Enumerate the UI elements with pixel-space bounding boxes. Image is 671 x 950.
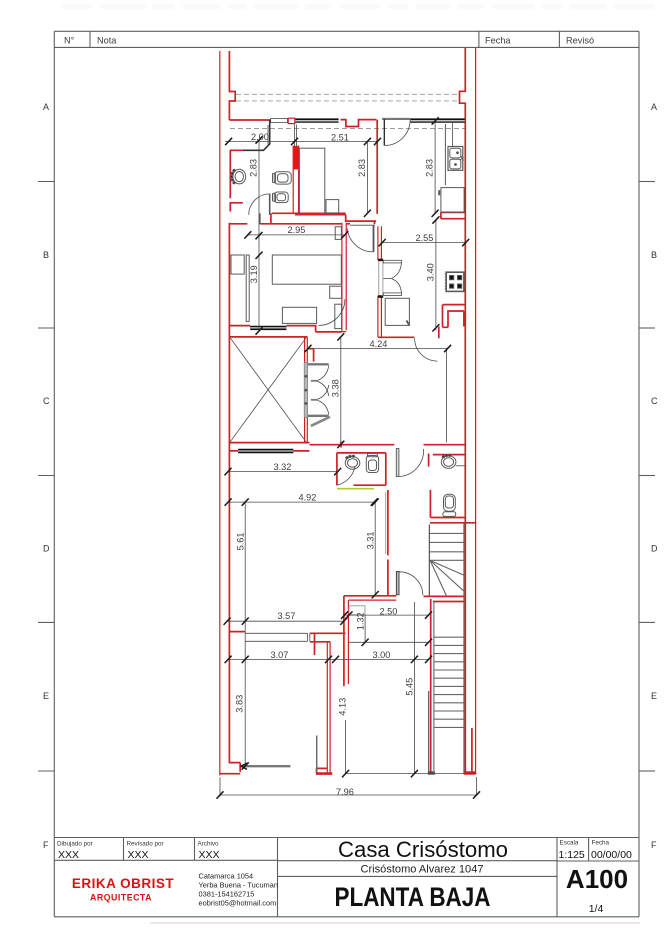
svg-text:4.24: 4.24	[370, 339, 388, 349]
svg-text:A: A	[651, 102, 657, 112]
svg-text:Escala: Escala	[560, 840, 579, 847]
svg-text:C: C	[651, 396, 658, 406]
svg-text:eobrist05@hotmail.com: eobrist05@hotmail.com	[199, 899, 277, 908]
svg-text:D: D	[651, 544, 658, 554]
svg-text:Crisóstomo Alvarez 1047: Crisóstomo Alvarez 1047	[361, 864, 484, 876]
svg-text:A: A	[43, 102, 49, 112]
svg-text:3.83: 3.83	[235, 695, 245, 713]
svg-text:F: F	[651, 840, 657, 850]
svg-text:3.32: 3.32	[274, 462, 292, 472]
svg-text:2.00: 2.00	[251, 132, 269, 142]
svg-text:Catamarca 1054: Catamarca 1054	[199, 872, 254, 881]
svg-text:2.83: 2.83	[249, 159, 259, 177]
svg-text:N°: N°	[64, 36, 75, 46]
svg-text:2.51: 2.51	[331, 133, 349, 143]
svg-text:Revisado por: Revisado por	[127, 841, 164, 848]
svg-text:D: D	[43, 544, 50, 554]
svg-text:1:125: 1:125	[559, 849, 585, 861]
svg-text:F: F	[43, 840, 49, 850]
svg-text:5.61: 5.61	[236, 533, 246, 551]
svg-text:3.31: 3.31	[366, 532, 376, 550]
svg-text:00/00/00: 00/00/00	[591, 849, 632, 861]
svg-text:Fecha: Fecha	[485, 36, 511, 46]
svg-text:2.83: 2.83	[425, 159, 435, 177]
svg-text:3.00: 3.00	[373, 650, 391, 660]
svg-text:ERIKA OBRIST: ERIKA OBRIST	[72, 876, 175, 891]
svg-text:E: E	[43, 691, 49, 701]
svg-text:XXX: XXX	[199, 849, 220, 861]
svg-text:A100: A100	[566, 864, 628, 894]
svg-text:3.07: 3.07	[271, 650, 289, 660]
svg-text:3.19: 3.19	[249, 265, 259, 283]
svg-text:B: B	[43, 250, 49, 260]
svg-text:Archivo: Archivo	[198, 841, 219, 848]
svg-text:2.50: 2.50	[380, 607, 398, 617]
svg-text:1.32: 1.32	[356, 612, 366, 630]
svg-text:Yerba Buena - Tucuman: Yerba Buena - Tucuman	[199, 881, 278, 890]
svg-text:Revisó: Revisó	[566, 36, 594, 46]
svg-text:3.57: 3.57	[278, 611, 296, 621]
svg-text:2.83: 2.83	[357, 159, 367, 177]
svg-text:2.55: 2.55	[416, 233, 434, 243]
svg-text:E: E	[651, 691, 657, 701]
svg-text:C: C	[43, 396, 50, 406]
svg-text:ARQUITECTA: ARQUITECTA	[90, 893, 152, 903]
svg-text:3.38: 3.38	[331, 379, 341, 397]
svg-text:3.40: 3.40	[426, 263, 436, 281]
svg-text:Nota: Nota	[97, 36, 117, 46]
svg-text:XXX: XXX	[128, 849, 149, 861]
svg-text:2.95: 2.95	[288, 225, 306, 235]
svg-text:Fecha: Fecha	[592, 840, 610, 847]
svg-text:4.92: 4.92	[299, 493, 317, 503]
svg-text:Casa Crisóstomo: Casa Crisóstomo	[338, 837, 508, 862]
svg-text:0381-154162715: 0381-154162715	[199, 890, 255, 899]
svg-text:7.96: 7.96	[336, 787, 354, 797]
svg-text:5.45: 5.45	[405, 678, 415, 696]
svg-text:1/4: 1/4	[589, 903, 604, 915]
svg-text:PLANTA BAJA: PLANTA BAJA	[335, 882, 491, 912]
svg-text:Dibujado por: Dibujado por	[57, 841, 93, 848]
svg-text:XXX: XXX	[58, 849, 79, 861]
svg-text:4.13: 4.13	[338, 698, 348, 716]
svg-text:B: B	[651, 250, 657, 260]
